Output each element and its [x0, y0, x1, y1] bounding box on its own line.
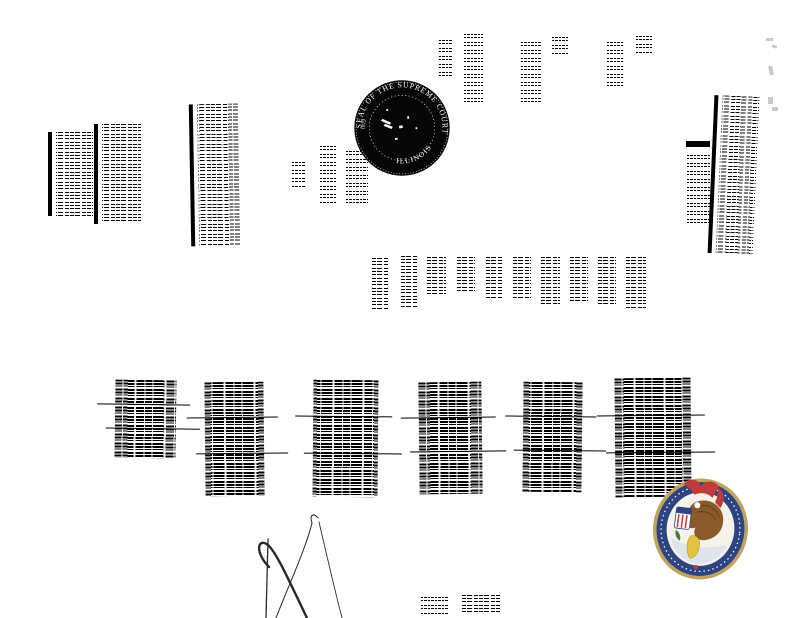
illegible-paragraph-block — [522, 382, 582, 493]
illegible-list-item — [456, 257, 475, 292]
illegible-text-column — [319, 146, 337, 204]
scan-artifact — [772, 44, 778, 49]
illegible-text-column — [606, 42, 623, 88]
illegible-paragraph-block — [418, 382, 482, 495]
illegible-heading-block — [48, 132, 93, 216]
illinois-state-seal — [650, 476, 751, 582]
illegible-list-item — [569, 257, 588, 303]
supreme-court-seal: SEAL OF THE SUPREME COURT ILLINOIS 1819 — [349, 75, 455, 181]
state-seal-shield — [674, 507, 692, 530]
illegible-text-column — [438, 40, 452, 76]
illegible-list-item — [426, 257, 446, 295]
illegible-text-column — [551, 37, 568, 56]
scan-artifact — [766, 38, 773, 41]
scan-artifact — [772, 107, 778, 111]
illegible-paragraph-block — [312, 380, 378, 498]
scanned-page: SEAL OF THE SUPREME COURT ILLINOIS 1819 — [0, 0, 800, 618]
illegible-heading-block — [94, 124, 141, 224]
illegible-list-item — [625, 257, 646, 310]
illegible-text-fragment — [420, 597, 449, 614]
illegible-text-column — [291, 162, 306, 188]
illegible-heading-block — [189, 104, 240, 247]
illegible-list-item — [400, 256, 417, 307]
illegible-list-item — [597, 257, 616, 307]
illegible-text-fragment — [461, 595, 500, 612]
illegible-text-column — [463, 34, 483, 104]
signature-stroke — [319, 522, 342, 618]
scan-artifact — [768, 66, 774, 76]
signature — [235, 503, 365, 618]
illegible-list-item — [485, 257, 503, 300]
scan-artifact — [768, 97, 773, 104]
illegible-heading-block — [708, 95, 760, 255]
illegible-list-item — [540, 257, 560, 307]
illegible-text-column — [635, 36, 652, 54]
illegible-list-item — [512, 257, 531, 300]
illegible-text-column — [686, 141, 710, 225]
illegible-text-column — [520, 42, 542, 104]
illegible-list-item — [371, 258, 388, 310]
signature-stroke — [266, 539, 268, 618]
illegible-paragraph-block — [204, 382, 264, 497]
illegible-paragraph-block — [114, 380, 176, 459]
